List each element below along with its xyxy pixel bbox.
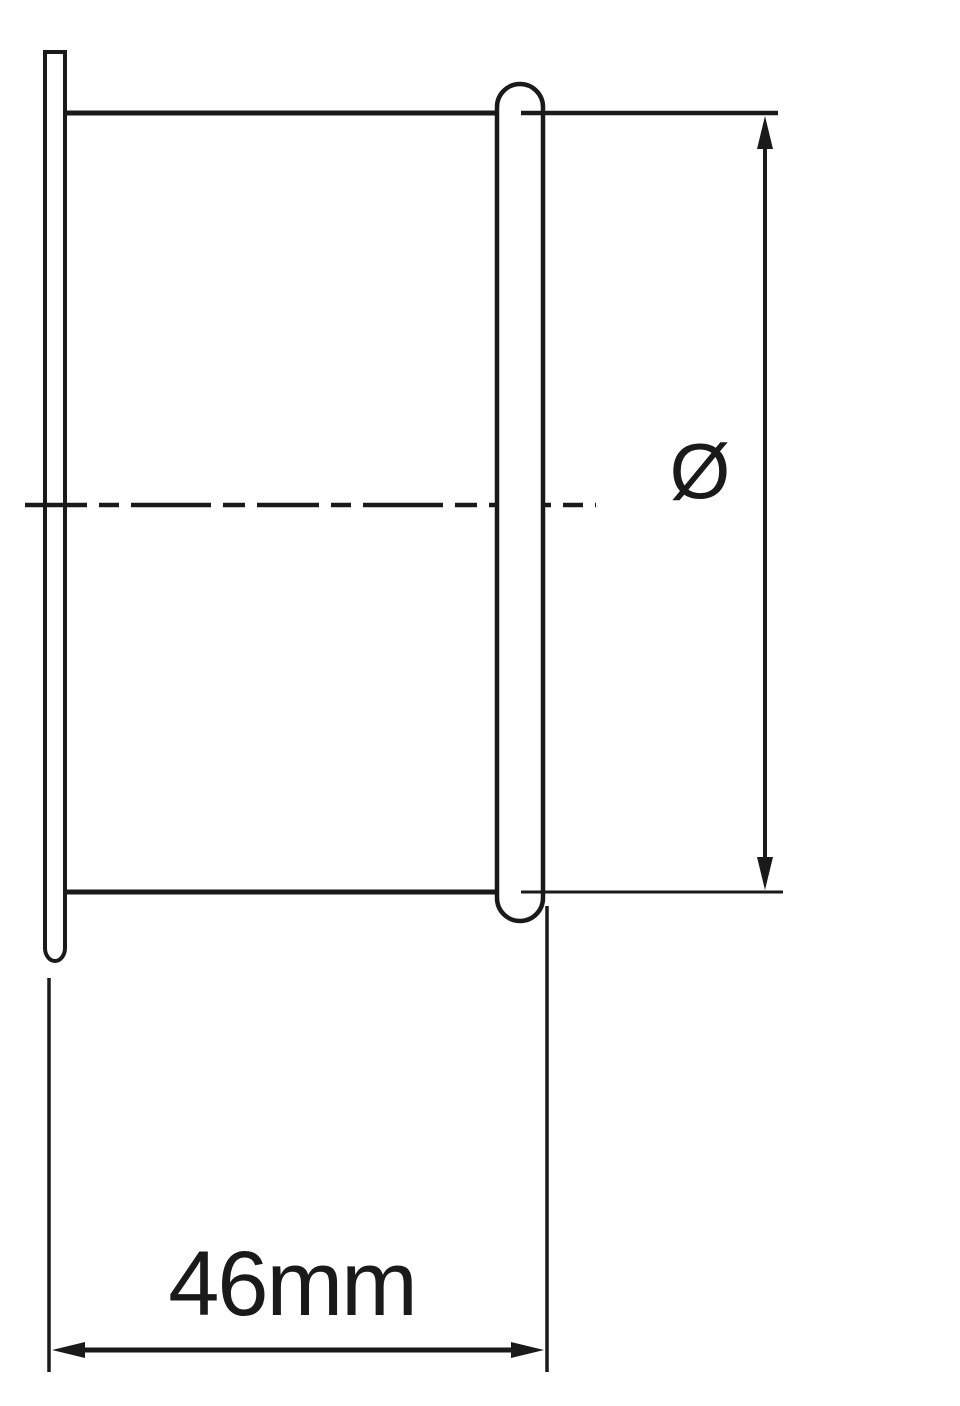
arrowhead-up-icon — [757, 116, 773, 149]
drawing-page: Ø 46mm — [0, 0, 960, 1406]
technical-drawing-canvas: Ø 46mm — [0, 0, 960, 1406]
arrowhead-down-icon — [757, 857, 773, 890]
bead-ring — [497, 84, 543, 921]
arrowhead-left-icon — [52, 1342, 85, 1358]
diameter-symbol-label: Ø — [670, 427, 731, 515]
arrowhead-right-icon — [511, 1342, 544, 1358]
length-dimension-label: 46mm — [168, 1233, 416, 1335]
